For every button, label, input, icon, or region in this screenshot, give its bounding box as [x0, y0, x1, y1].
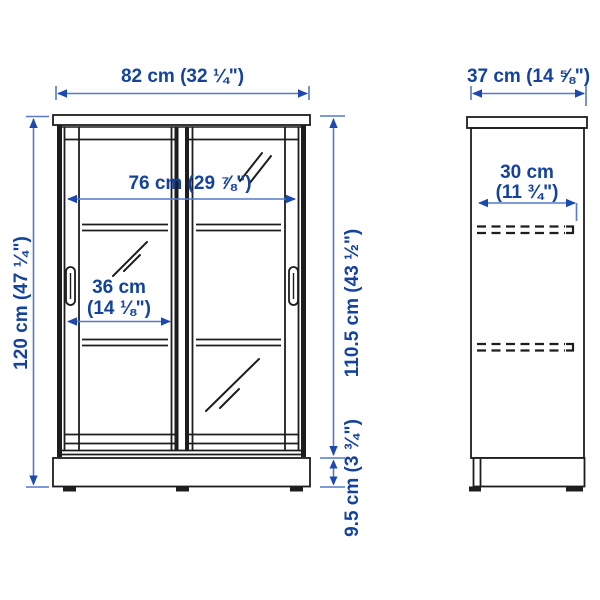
dim-door-height: 110.5 cm (43 ½")	[320, 116, 363, 458]
arrowhead-down-icon	[329, 446, 337, 456]
front-top-board	[53, 115, 310, 125]
side-top-board	[467, 117, 587, 128]
arrowhead-right-icon	[566, 199, 576, 207]
dim-depth-label: 37 cm (14 ⅝")	[467, 66, 590, 87]
arrowhead-up-icon	[29, 118, 37, 128]
dim-door-height-label: 110.5 cm (43 ½")	[342, 229, 363, 377]
dim-door-width-metric-label: 36 cm	[92, 277, 146, 298]
dim-overall-height: 120 cm (47 ¼")	[11, 117, 49, 488]
dashed-shelf-upper	[477, 227, 573, 234]
arrowhead-down-icon	[330, 477, 338, 486]
dim-plinth-height-label: 9.5 cm (3 ¾")	[342, 419, 363, 537]
front-plinth	[53, 458, 310, 487]
cabinet-dimension-diagram: 82 cm (32 ¼") 37 cm (14 ⅝") 120 cm (47 ¼…	[0, 0, 600, 600]
arrowhead-right-icon	[575, 89, 585, 97]
dim-inner-depth: 30 cm (11 ¾")	[478, 162, 577, 221]
side-plinth	[474, 458, 585, 487]
dim-overall-height-label: 120 cm (47 ¼")	[11, 236, 32, 370]
dim-inner-width-label: 76 cm (29 ⅞")	[128, 173, 251, 194]
arrowhead-right-icon	[161, 317, 171, 325]
arrowhead-left-icon	[67, 317, 77, 325]
dim-inner-width: 76 cm (29 ⅞")	[67, 173, 296, 203]
arrowhead-left-icon	[57, 89, 67, 97]
arrowhead-left-icon	[472, 89, 482, 97]
dim-overall-width-label: 82 cm (32 ¼")	[121, 66, 244, 87]
arrowhead-left-icon	[67, 195, 77, 203]
dashed-shelf-lower	[477, 344, 573, 351]
dim-overall-width: 82 cm (32 ¼")	[56, 66, 309, 100]
dim-inner-depth-metric-label: 30 cm	[500, 162, 554, 183]
dim-plinth-height: 9.5 cm (3 ¾")	[320, 419, 363, 537]
dim-door-width-imperial-label: (14 ⅛")	[87, 298, 151, 319]
left-door-handle	[66, 267, 75, 305]
right-door-handle	[289, 267, 298, 305]
dim-door-width: 36 cm (14 ⅛")	[67, 277, 171, 326]
dimension-diagram-page: 82 cm (32 ¼") 37 cm (14 ⅝") 120 cm (47 ¼…	[0, 0, 600, 600]
arrowhead-left-icon	[478, 199, 488, 207]
arrowhead-right-icon	[286, 195, 296, 203]
arrowhead-down-icon	[29, 476, 37, 486]
dim-depth: 37 cm (14 ⅝")	[467, 66, 590, 106]
door-track	[58, 451, 306, 455]
arrowhead-right-icon	[298, 89, 308, 97]
arrowhead-up-icon	[330, 460, 338, 469]
arrowhead-up-icon	[329, 118, 337, 128]
dim-inner-depth-imperial-label: (11 ¾")	[496, 182, 559, 203]
